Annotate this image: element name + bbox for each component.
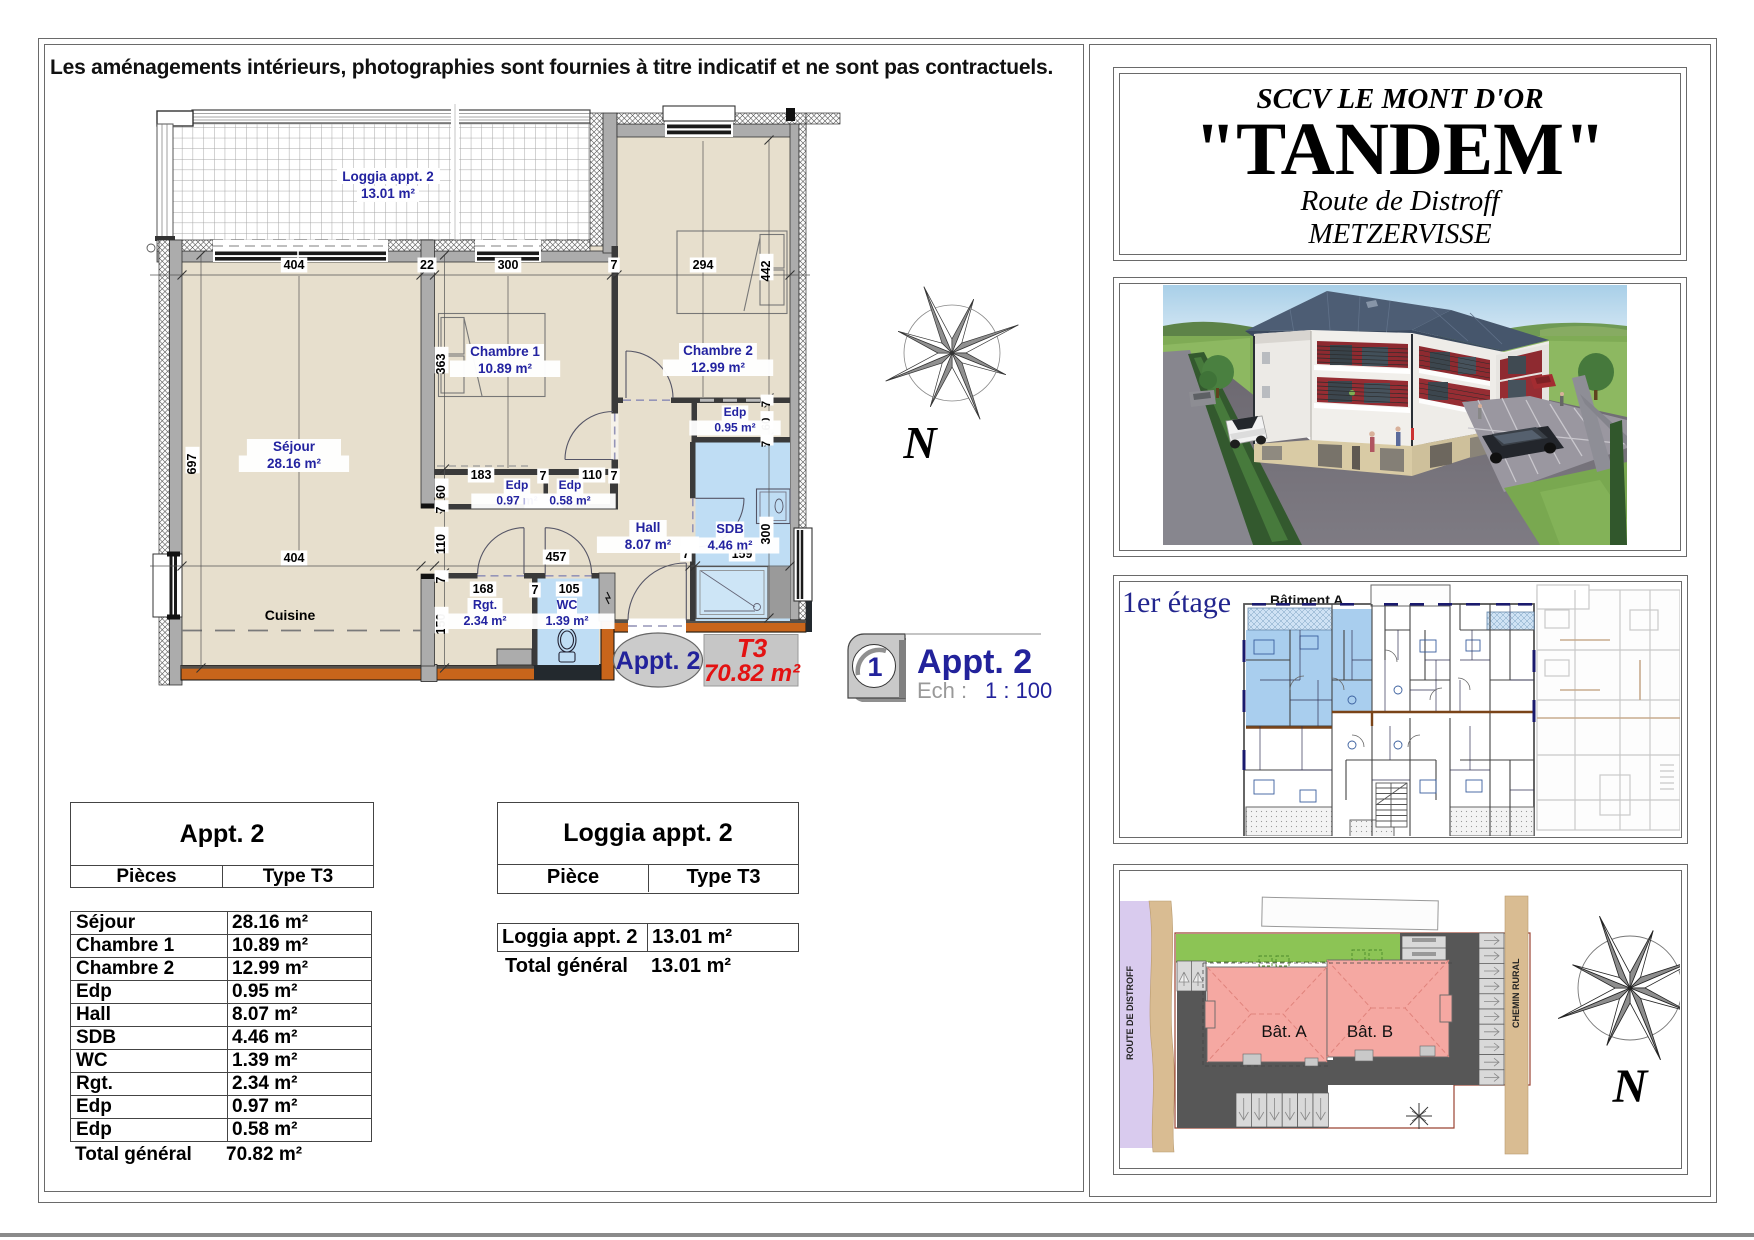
svg-text:N: N [902,417,938,468]
svg-text:Cuisine: Cuisine [265,607,316,623]
svg-text:13.01 m²: 13.01 m² [361,186,416,201]
svg-text:Rgt.: Rgt. [473,598,497,612]
svg-text:7: 7 [434,576,448,583]
svg-text:363: 363 [434,354,448,375]
svg-text:Edp: Edp [724,405,747,419]
svg-text:28.16 m²: 28.16 m² [267,456,322,471]
svg-text:12.99 m²: 12.99 m² [691,360,746,375]
svg-text:Appt. 2: Appt. 2 [917,643,1032,681]
svg-text:300: 300 [759,524,773,545]
svg-text:1 : 100: 1 : 100 [985,678,1052,703]
svg-text:300: 300 [498,258,519,272]
svg-text:0.95 m²: 0.95 m² [714,421,755,435]
svg-text:Séjour: Séjour [273,439,316,454]
svg-text:110: 110 [434,534,448,554]
svg-text:183: 183 [471,468,492,482]
svg-text:WC: WC [557,598,578,612]
svg-text:Chambre 2: Chambre 2 [683,343,753,358]
svg-text:457: 457 [546,550,567,564]
svg-text:7: 7 [611,258,618,272]
svg-text:7: 7 [611,469,618,483]
svg-text:7: 7 [540,469,547,483]
svg-text:2.34 m²: 2.34 m² [463,614,506,628]
svg-text:7: 7 [434,506,448,513]
svg-text:22: 22 [420,258,434,272]
svg-text:10.89 m²: 10.89 m² [478,361,533,376]
svg-text:294: 294 [693,258,714,272]
svg-text:Edp: Edp [506,478,529,492]
svg-text:1: 1 [867,652,882,682]
svg-text:60: 60 [434,485,448,499]
svg-text:Edp: Edp [559,478,582,492]
svg-text:0.58 m²: 0.58 m² [549,494,590,508]
svg-text:Appt. 2: Appt. 2 [616,647,701,675]
svg-text:404: 404 [284,551,305,565]
svg-text:442: 442 [759,261,773,282]
svg-text:8.07 m²: 8.07 m² [625,537,672,552]
svg-text:Chambre 1: Chambre 1 [470,344,540,359]
svg-text:7: 7 [532,583,539,597]
svg-text:7: 7 [761,401,773,407]
svg-text:404: 404 [284,258,305,272]
svg-text:110: 110 [582,468,602,482]
svg-text:SDB: SDB [716,521,743,536]
svg-text:697: 697 [185,454,199,475]
svg-text:168: 168 [473,582,494,596]
svg-text:Hall: Hall [636,520,661,535]
svg-text:70.82 m²: 70.82 m² [704,660,801,687]
svg-text:Ech :: Ech : [917,678,967,703]
svg-text:7: 7 [761,441,773,447]
svg-text:Loggia appt. 2: Loggia appt. 2 [342,169,434,184]
svg-text:1.39 m²: 1.39 m² [545,614,588,628]
svg-text:105: 105 [559,582,580,596]
svg-text:T3: T3 [737,633,768,663]
svg-text:4.46 m²: 4.46 m² [708,538,753,553]
